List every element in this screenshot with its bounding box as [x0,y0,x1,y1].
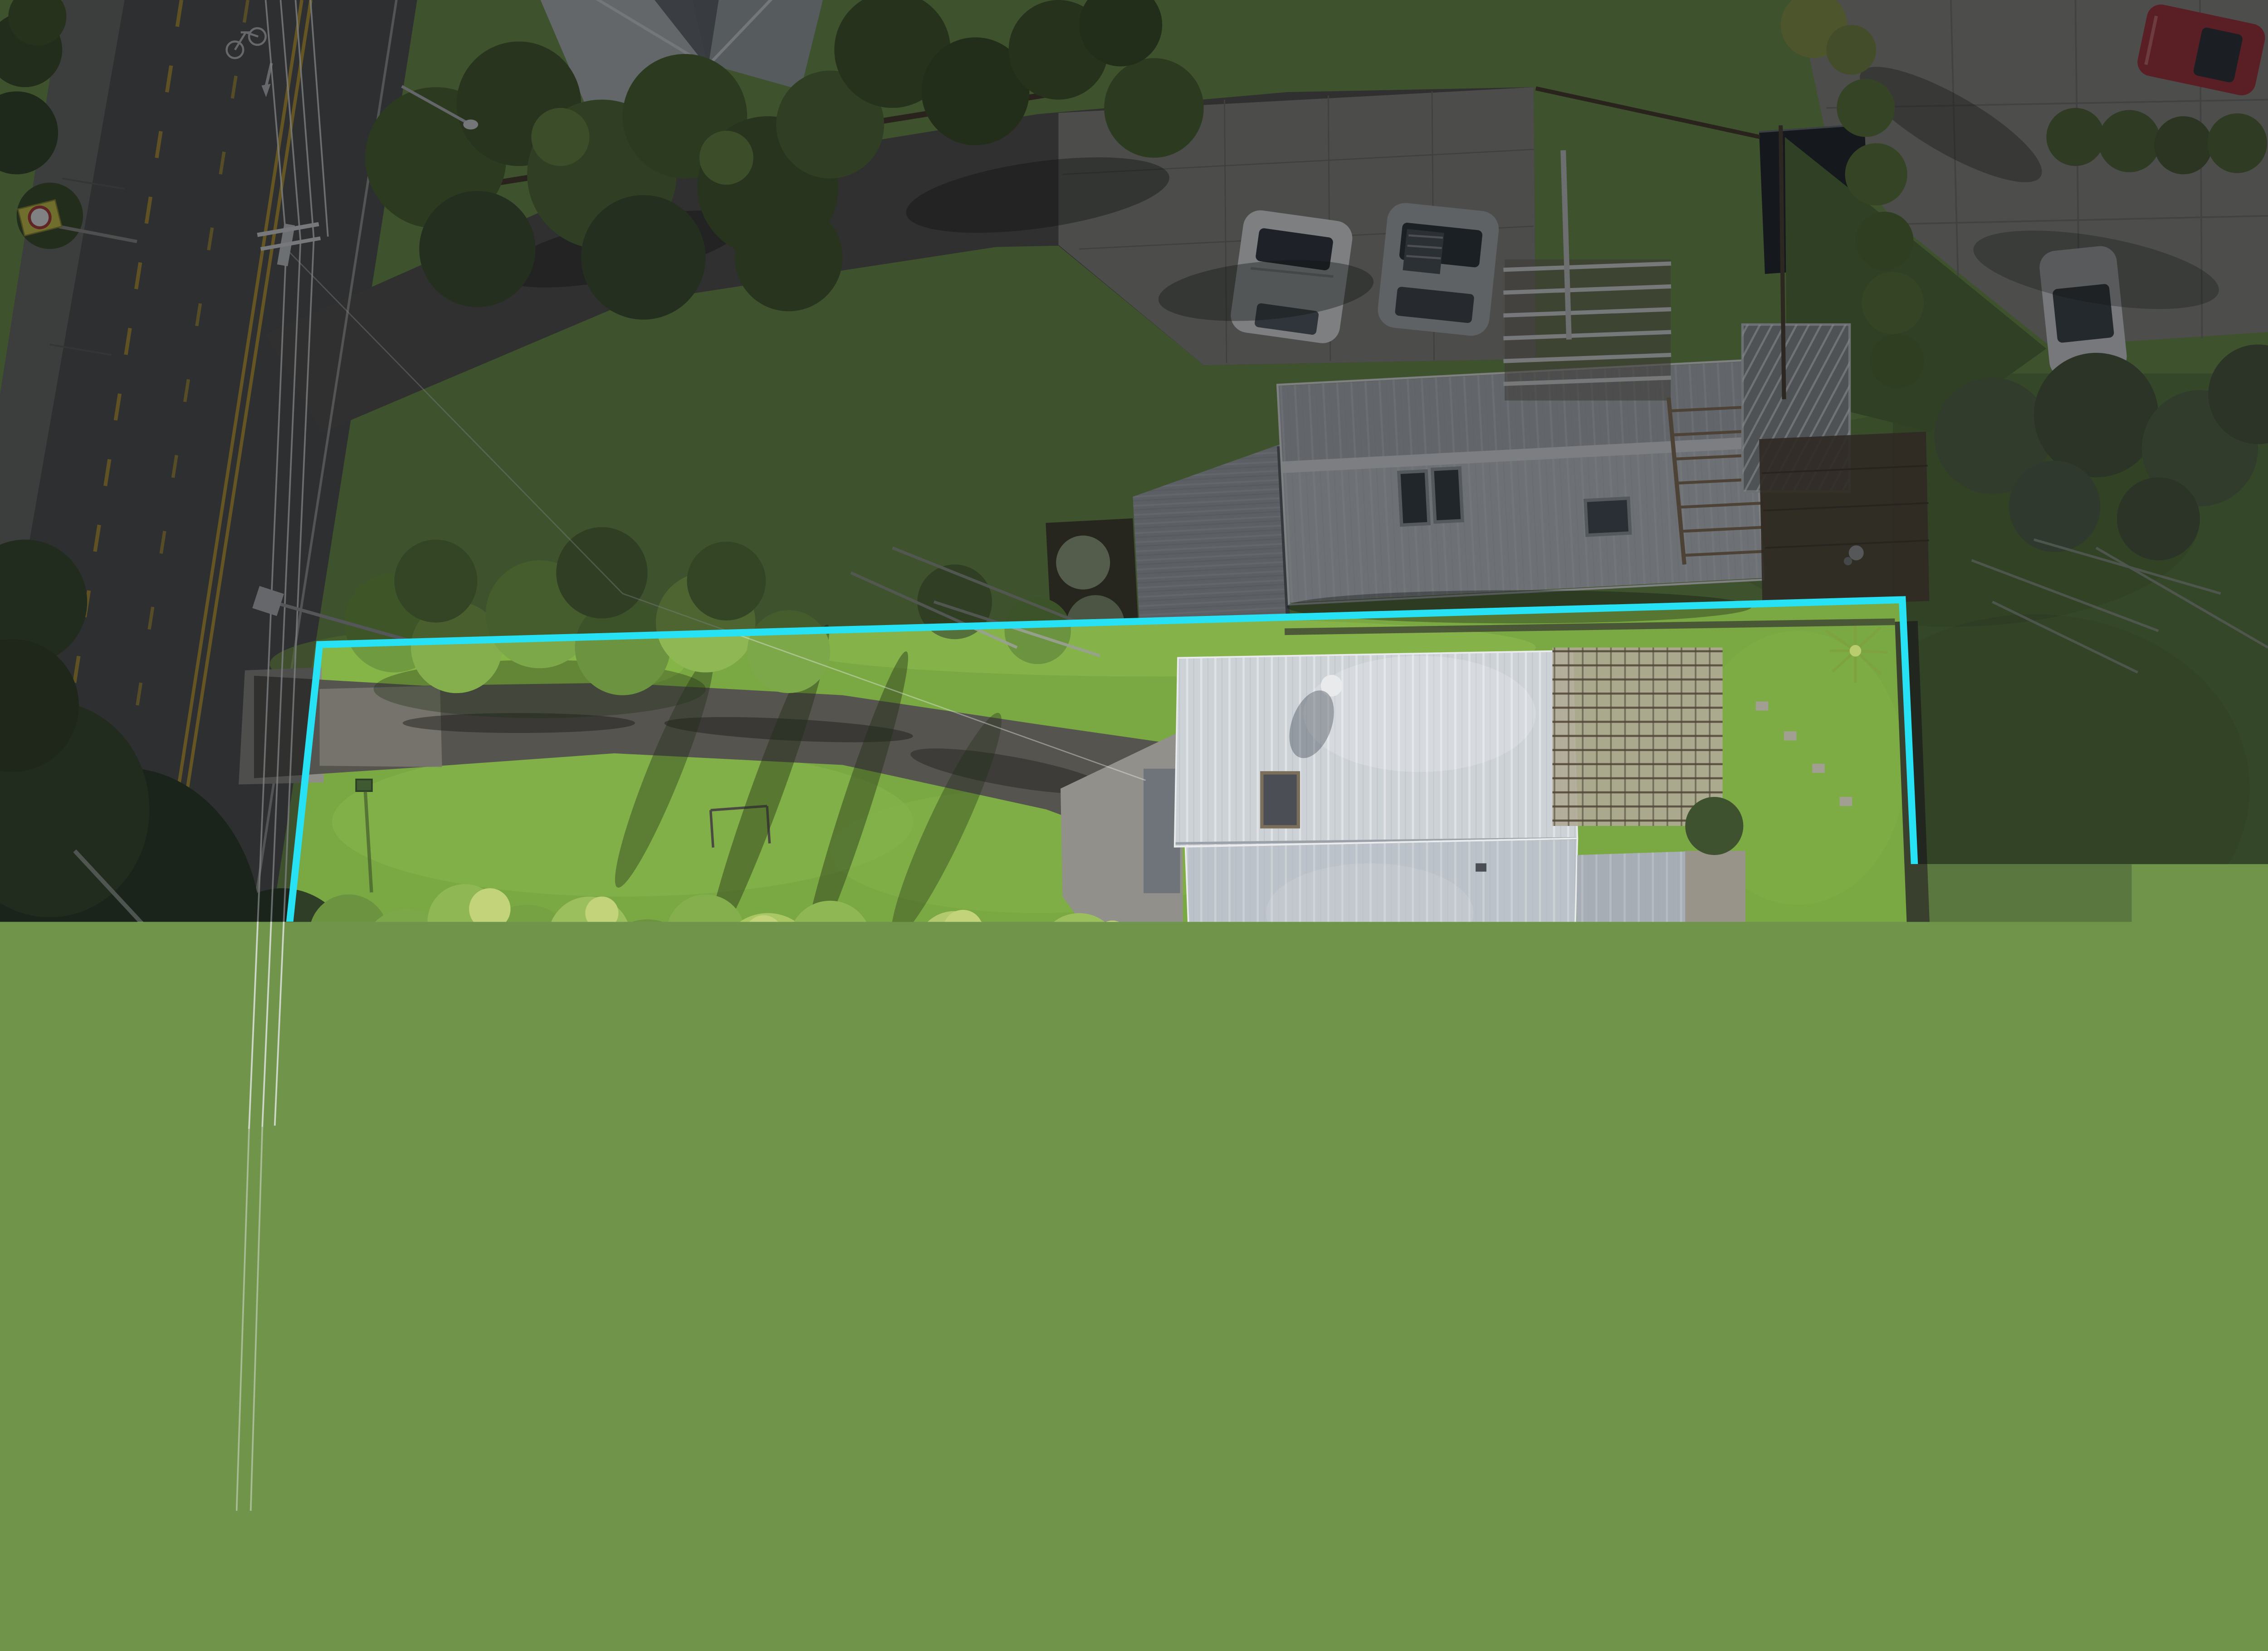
skylight [1262,773,1299,827]
aerial-drone-photo: Indicative Boundary Lines [0,0,2268,1511]
screenshot-root: Indicative Boundary Lines [0,0,2268,1511]
caption-text: Indicative Boundary Lines [810,1275,1322,1319]
utility-box [356,780,372,791]
lot-shrub [1685,797,1743,855]
